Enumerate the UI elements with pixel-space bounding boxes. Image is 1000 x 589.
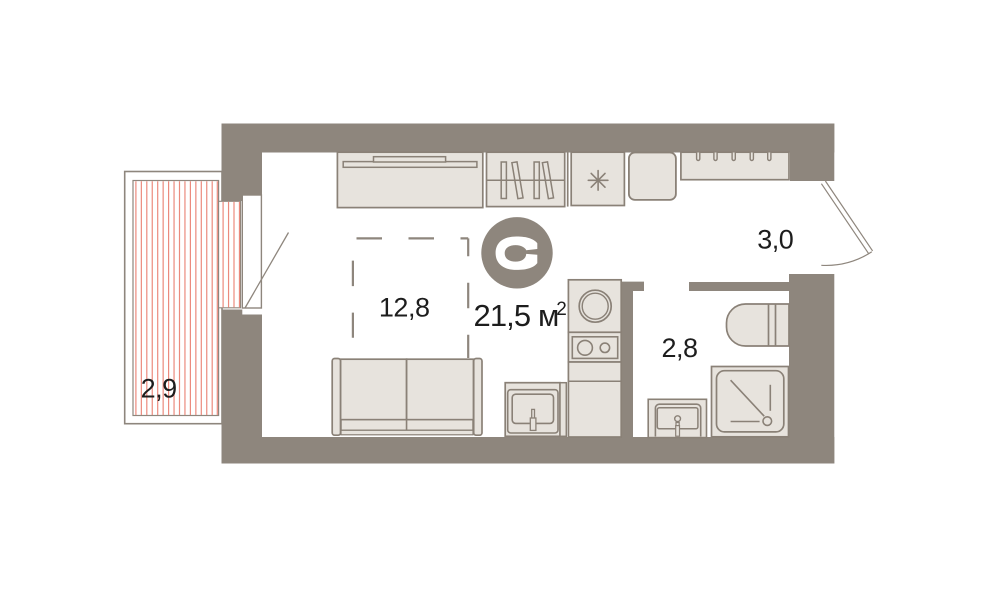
svg-text:2,9: 2,9 — [141, 374, 177, 404]
svg-text:21,5 м: 21,5 м — [474, 298, 559, 333]
svg-text:3,0: 3,0 — [757, 225, 793, 255]
svg-text:12,8: 12,8 — [379, 293, 430, 323]
svg-text:2: 2 — [556, 299, 567, 320]
svg-text:2,8: 2,8 — [661, 333, 697, 363]
